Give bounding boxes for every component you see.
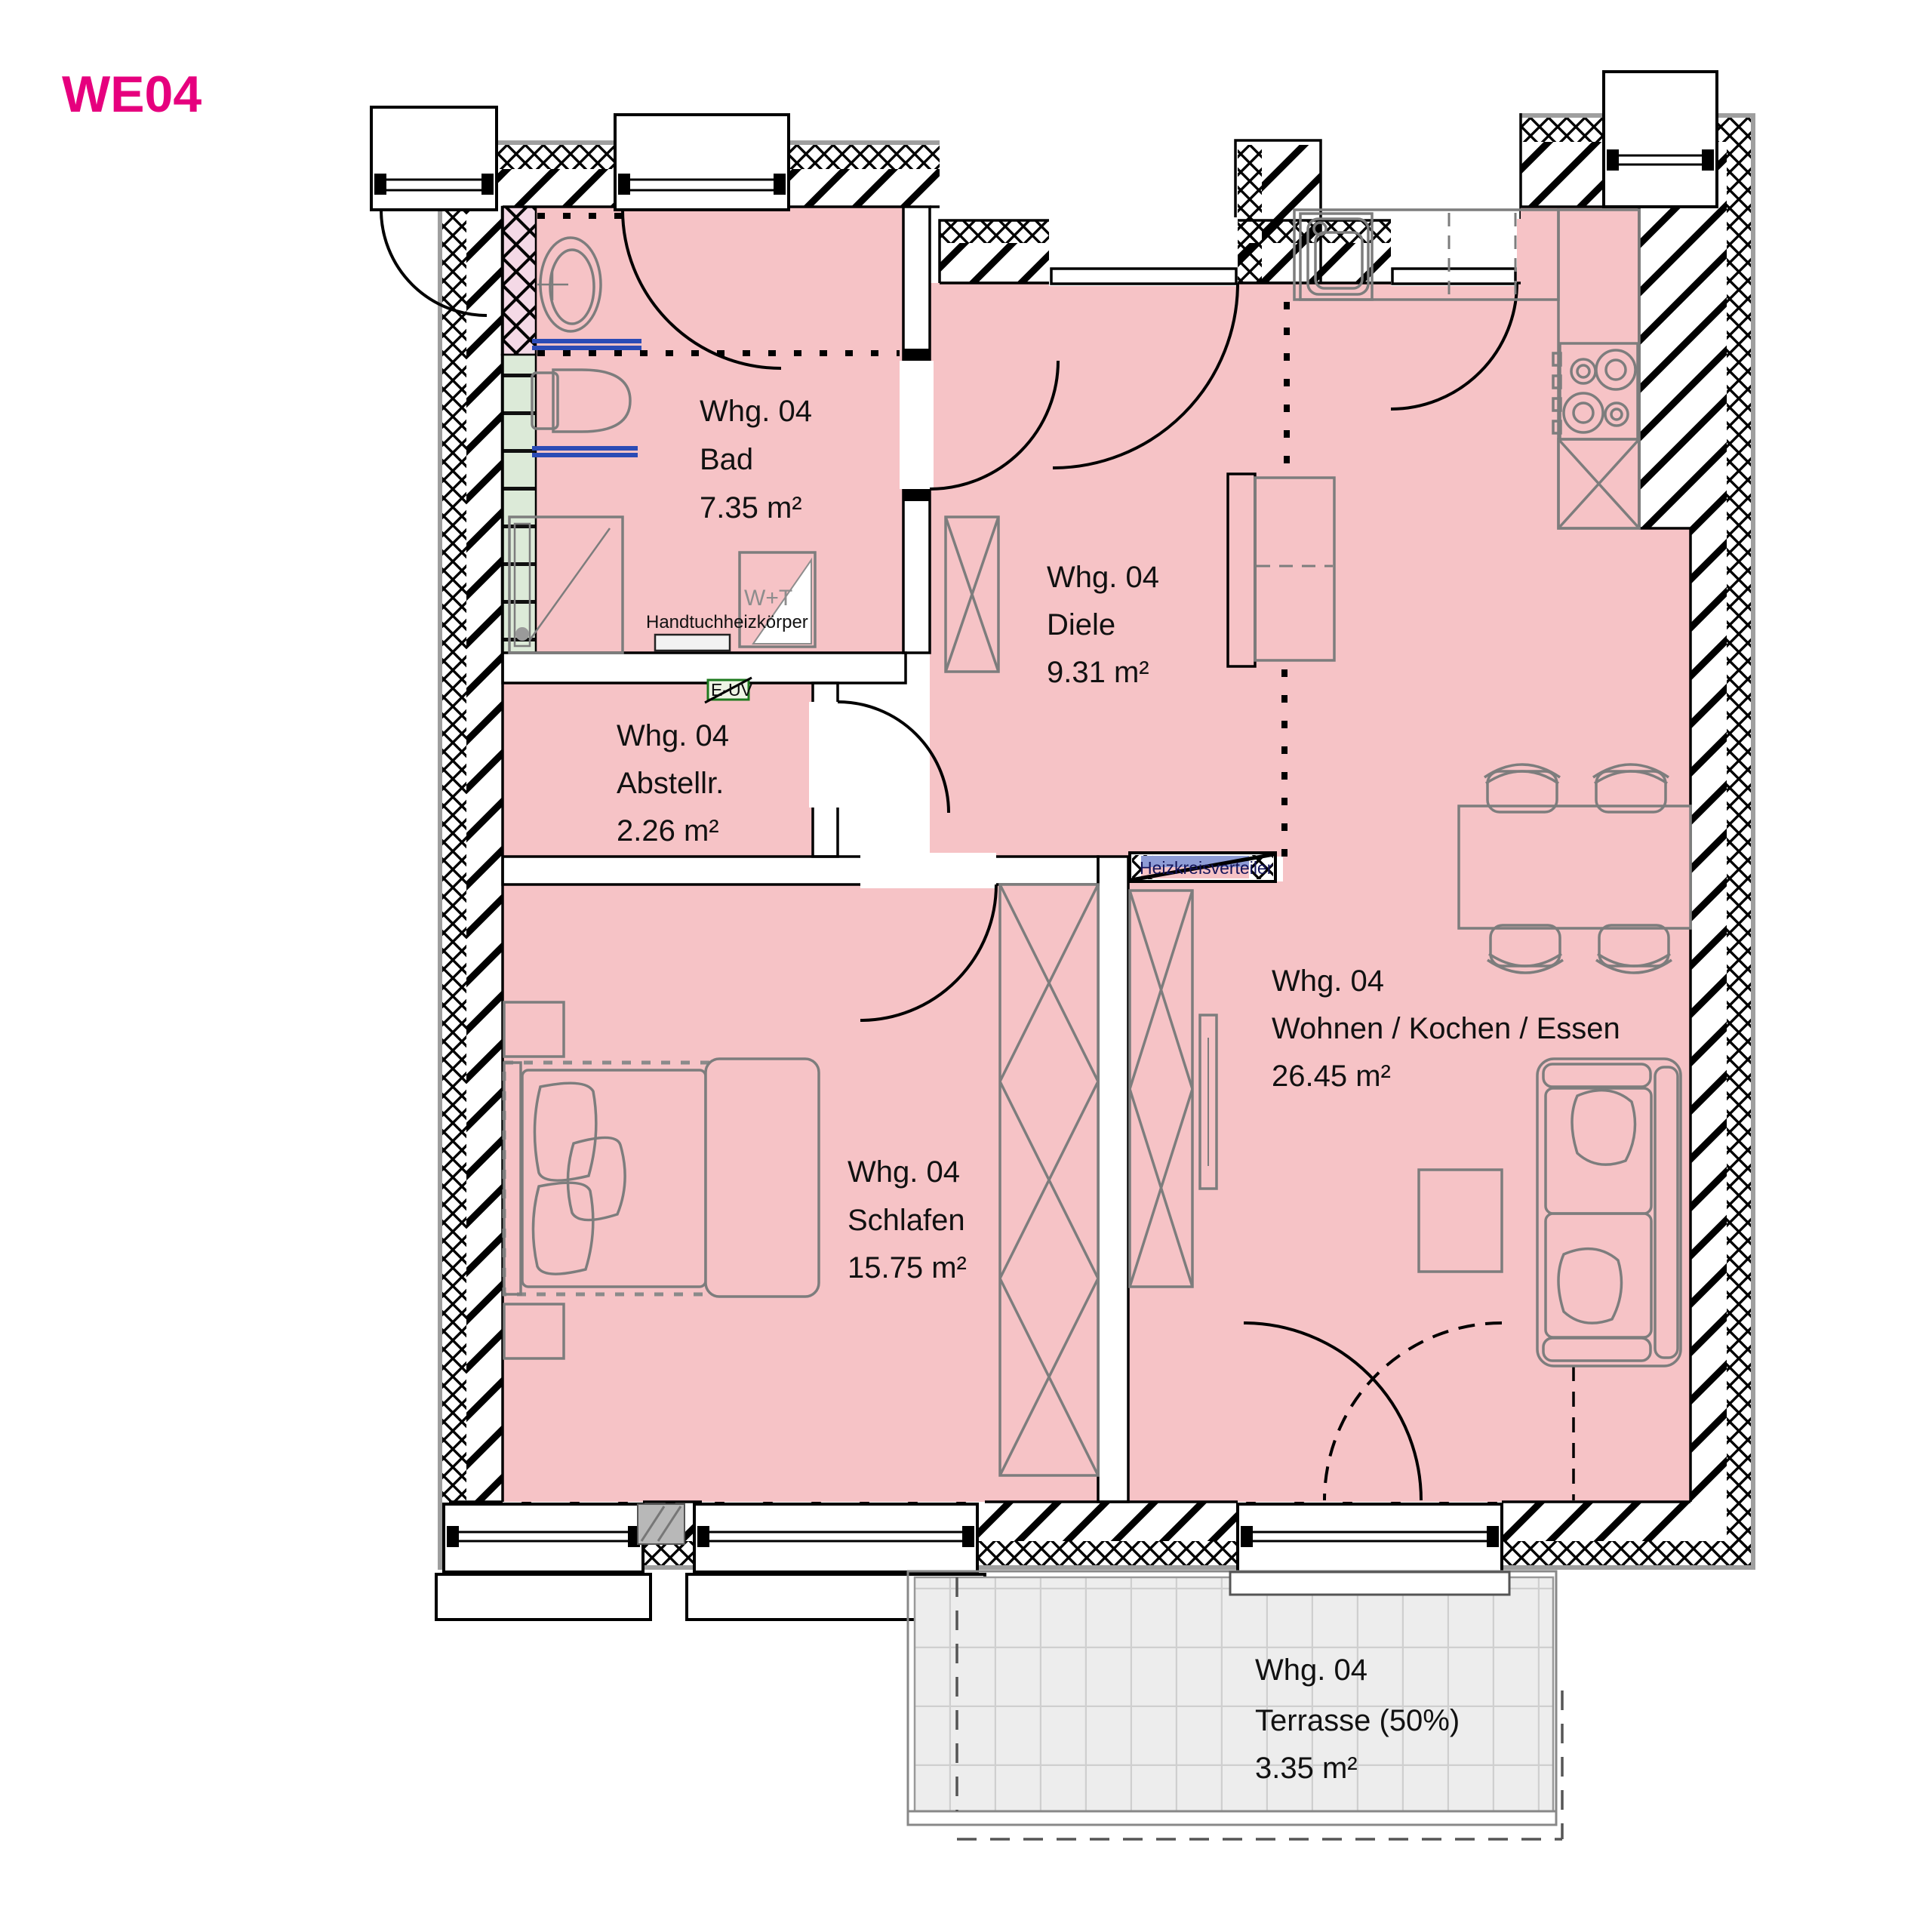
heating-manifold: Heizkreisverteiler (1130, 853, 1275, 881)
label-abstellraum: Whg. 04 Abstellr. 2.26 m² (617, 719, 729, 848)
corridor-notch (940, 72, 1521, 220)
wardrobe-schlafen (1000, 884, 1098, 1475)
sub-distribution: E-UV (705, 678, 753, 703)
floorplan-page: { "plan_title": "WE04", "unit_header": {… (0, 0, 1932, 1932)
room-kueche-floor (1283, 283, 1639, 532)
room-bad-floor (536, 207, 903, 653)
window-bad-diele (615, 115, 789, 210)
towel-radiator-label: Handtuchheizkörper (646, 612, 808, 632)
abstellraum-door-opening (809, 702, 841, 808)
svg-text:Diele: Diele (1047, 608, 1115, 641)
schlafen-door-opening (860, 853, 996, 888)
svg-text:Terrasse (50%): Terrasse (50%) (1255, 1704, 1460, 1737)
label-schlafen: Whg. 04 Schlafen 15.75 m² (848, 1155, 967, 1284)
washer-dryer-label: W+T (744, 586, 792, 611)
svg-text:9.31 m²: 9.31 m² (1047, 656, 1149, 689)
svg-text:Whg. 04: Whg. 04 (848, 1155, 960, 1189)
svg-text:Wohnen / Kochen / Essen: Wohnen / Kochen / Essen (1272, 1012, 1620, 1045)
dining-table (1459, 806, 1690, 928)
heating-manifold-label: Heizkreisverteiler (1140, 858, 1273, 878)
svg-text:Whg. 04: Whg. 04 (1255, 1654, 1367, 1687)
plan-title: WE04 (62, 66, 202, 123)
svg-text:Schlafen: Schlafen (848, 1204, 965, 1237)
bad-door-opening (900, 361, 934, 489)
sub-distribution-label: E-UV (711, 680, 753, 700)
svg-text:Whg. 04: Whg. 04 (617, 719, 729, 752)
towel-radiator-body (655, 635, 730, 651)
svg-text:3.35 m²: 3.35 m² (1255, 1752, 1358, 1785)
window-schlafen-1 (436, 1504, 651, 1620)
svg-text:2.26 m²: 2.26 m² (617, 814, 719, 848)
svg-text:Abstellr.: Abstellr. (617, 767, 724, 800)
floorplan-canvas: WE04 WE 04 64.47 m² (0, 0, 1932, 1932)
terrace-door (1238, 1504, 1502, 1572)
svg-text:7.35 m²: 7.35 m² (700, 491, 802, 525)
bathroom-prewall-strip (502, 207, 536, 355)
terrace-tiles (915, 1577, 1553, 1811)
terrace-door-sill (1230, 1572, 1509, 1595)
svg-text:15.75 m²: 15.75 m² (848, 1251, 967, 1284)
svg-text:26.45 m²: 26.45 m² (1272, 1060, 1391, 1093)
window-bad (371, 107, 497, 210)
svg-text:Bad: Bad (700, 443, 753, 476)
svg-text:Whg. 04: Whg. 04 (1272, 964, 1384, 998)
svg-text:Whg. 04: Whg. 04 (700, 395, 812, 428)
window-kueche (1604, 72, 1717, 207)
svg-text:Whg. 04: Whg. 04 (1047, 561, 1159, 594)
terrace (908, 1571, 1562, 1839)
